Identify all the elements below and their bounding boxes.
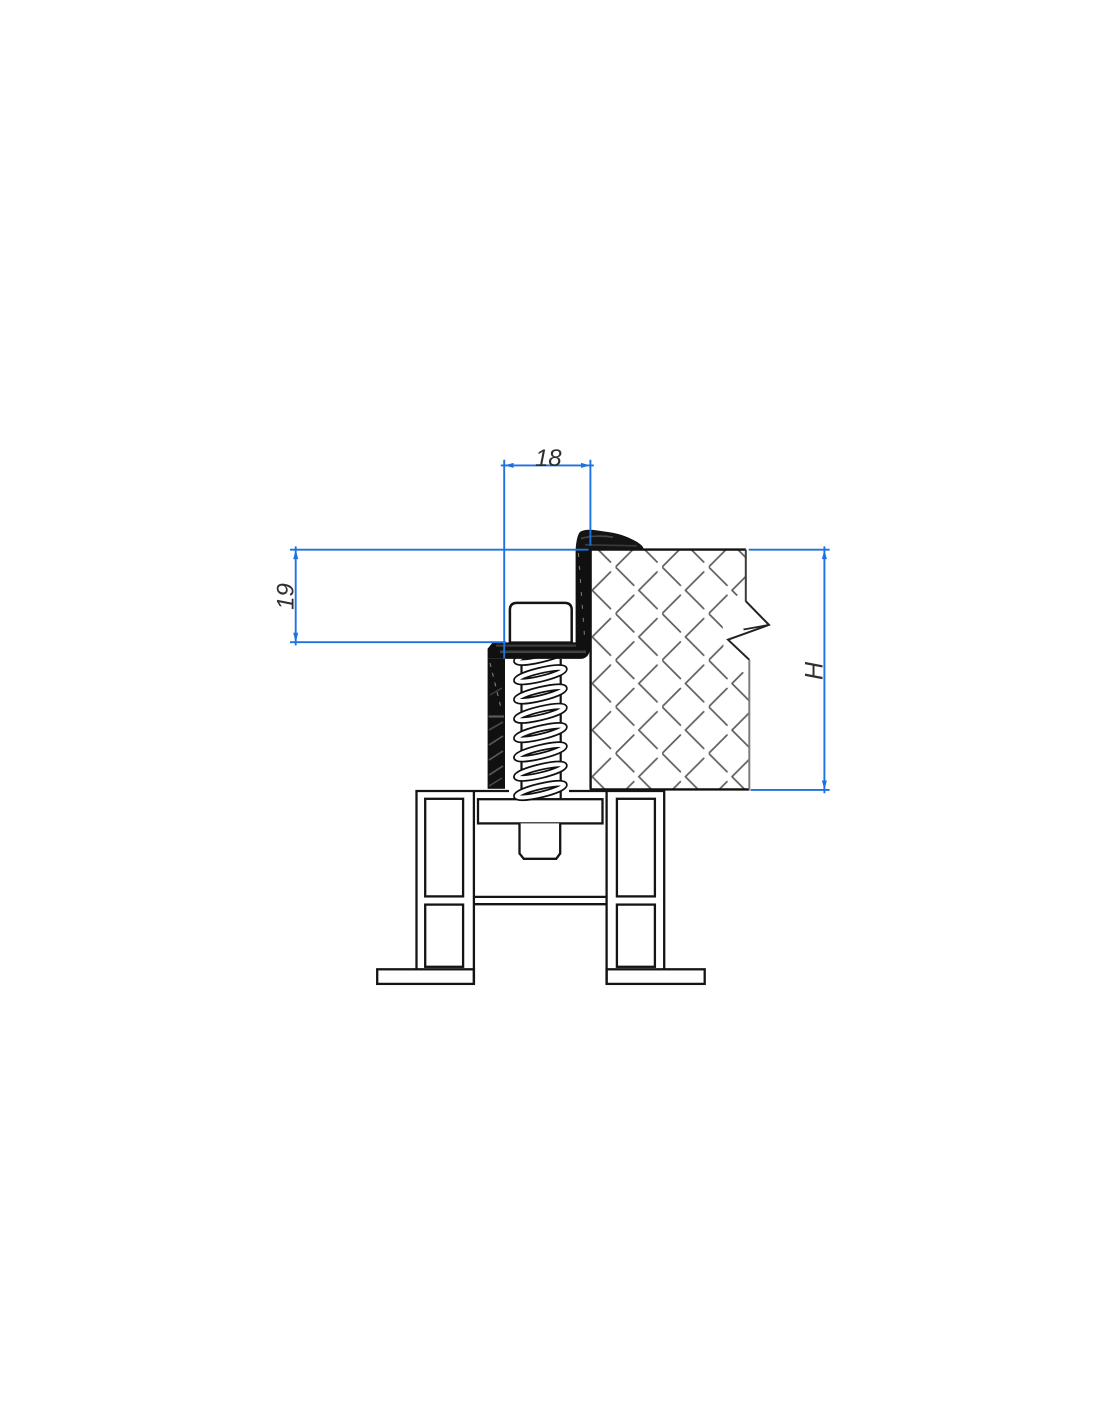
svg-text:18: 18 [535,445,562,472]
svg-text:H: H [800,661,828,680]
svg-text:19: 19 [273,583,300,610]
